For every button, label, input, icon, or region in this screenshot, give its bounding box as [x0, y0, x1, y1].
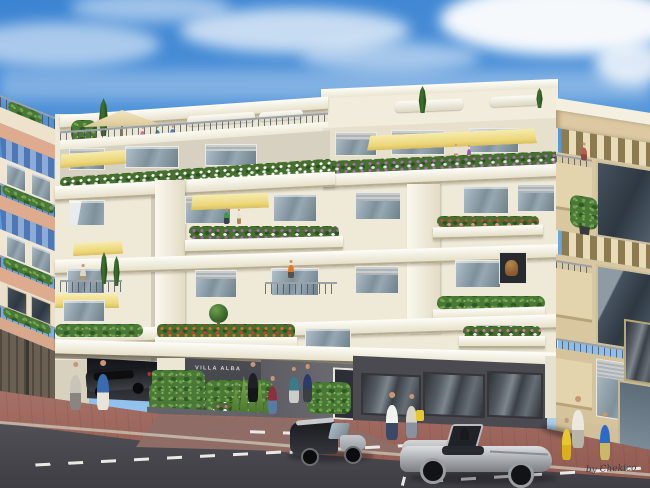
flower-planter [157, 324, 295, 338]
person [287, 260, 295, 278]
smart-car [288, 410, 372, 464]
balcony-parapet [556, 268, 592, 323]
person [560, 418, 573, 460]
roadster-wheel [420, 458, 446, 484]
window [125, 146, 179, 168]
yellow-bag [416, 410, 424, 421]
person [288, 367, 300, 403]
cloud [0, 22, 160, 67]
person [301, 364, 314, 402]
yellow-awning [73, 241, 123, 257]
awning-box [490, 95, 538, 107]
cloud [300, 42, 480, 72]
roadster-wheel [508, 462, 534, 488]
window [63, 300, 105, 322]
potted-plant [570, 194, 598, 230]
person [384, 392, 400, 440]
person [246, 362, 260, 402]
shop-glass [624, 319, 650, 386]
balcony-plants [55, 324, 143, 337]
balcony-slab [459, 336, 545, 348]
ball-tree [209, 304, 228, 323]
person [580, 142, 588, 161]
person [266, 376, 279, 414]
artist-signature: by Chekico [586, 463, 646, 479]
balcony-railing [265, 282, 337, 294]
window [355, 266, 399, 294]
roadster-car [398, 420, 558, 486]
window [273, 194, 317, 222]
person [236, 209, 242, 224]
storefront-window [423, 372, 485, 419]
scene-architectural-rendering: VILLA ALBA [0, 0, 650, 488]
yellow-awning [191, 193, 269, 211]
window [455, 260, 501, 288]
person [68, 362, 83, 410]
smart-wheel [344, 446, 362, 464]
window [195, 270, 237, 298]
person [95, 360, 111, 410]
window [463, 186, 509, 214]
driver [460, 428, 469, 440]
entrance-shrub [149, 370, 205, 412]
balcony-railing [60, 280, 122, 292]
sedan-taillight [148, 372, 151, 376]
window [355, 192, 401, 220]
window [205, 144, 257, 166]
window [517, 184, 555, 212]
person [598, 412, 612, 460]
person [223, 208, 230, 224]
sedan-wheel [132, 382, 144, 394]
smart-wheel [301, 448, 319, 466]
window [596, 160, 650, 245]
storefront-window [487, 371, 543, 419]
window [69, 200, 105, 226]
dog-in-window [505, 260, 518, 276]
roadster-cockpit [442, 446, 484, 455]
